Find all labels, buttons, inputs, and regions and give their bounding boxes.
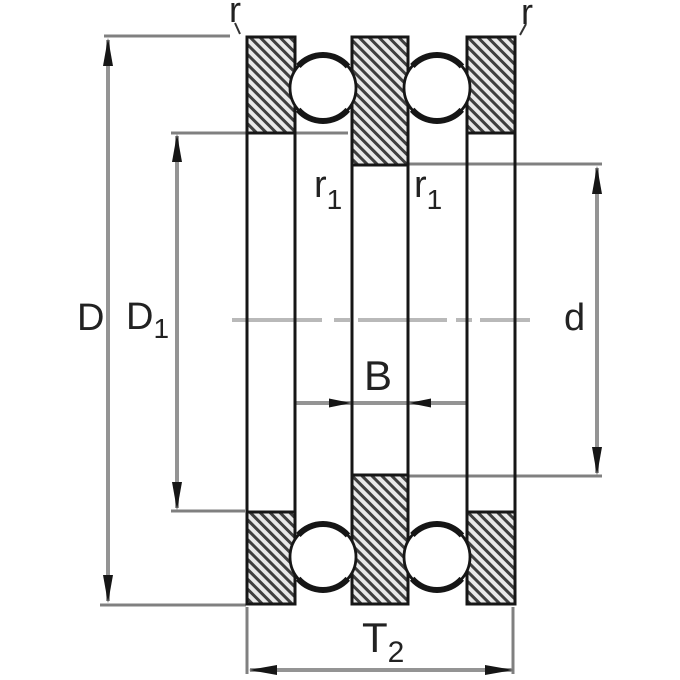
arrow-B-left xyxy=(329,399,351,408)
housing-washer-right-top-section xyxy=(467,37,515,133)
arrow-D-bottom xyxy=(103,575,113,603)
arrow-d-bottom xyxy=(592,447,602,475)
diagram-canvas: D D1 d B T2 r r r1 r1 xyxy=(0,0,680,680)
arrow-D1-top xyxy=(172,134,182,162)
arrow-d-top xyxy=(592,166,602,194)
chamfer-leader-lines xyxy=(235,23,526,35)
bearing-cross-section-diagram: D D1 d B T2 r r r1 r1 xyxy=(0,0,680,680)
label-total-height-subscript: 2 xyxy=(388,636,405,669)
arrow-D-top xyxy=(103,38,113,66)
label-shaft-washer-width: B xyxy=(364,352,392,399)
arrow-B-right xyxy=(409,399,431,408)
label-shoulder-diameter-subscript: 1 xyxy=(153,313,169,344)
arrow-T2-right xyxy=(485,665,513,675)
washer-silhouette-lines xyxy=(247,133,515,512)
arrow-T2-left xyxy=(249,665,277,675)
label-chamfer-top-left: r xyxy=(229,0,241,30)
shaft-washer-center-bottom-section xyxy=(352,475,408,604)
label-chamfer-top-right: r xyxy=(521,0,533,32)
label-chamfer-inner-right-subscript: 1 xyxy=(427,184,443,215)
label-chamfer-inner-left-subscript: 1 xyxy=(327,184,343,215)
label-bore-diameter: d xyxy=(564,297,585,339)
shaft-washer-center-top-section xyxy=(352,37,408,165)
housing-washer-left-bottom-section xyxy=(247,512,295,604)
label-outside-diameter: D xyxy=(77,297,104,339)
housing-washer-left-top-section xyxy=(247,37,295,133)
label-chamfer-inner-right: r1 xyxy=(414,164,442,215)
label-total-height: T2 xyxy=(362,614,404,669)
arrow-D1-bottom xyxy=(172,482,182,510)
housing-washer-right-bottom-section xyxy=(467,512,515,604)
label-shoulder-diameter: D1 xyxy=(126,296,169,344)
label-chamfer-inner-left: r1 xyxy=(314,164,342,215)
